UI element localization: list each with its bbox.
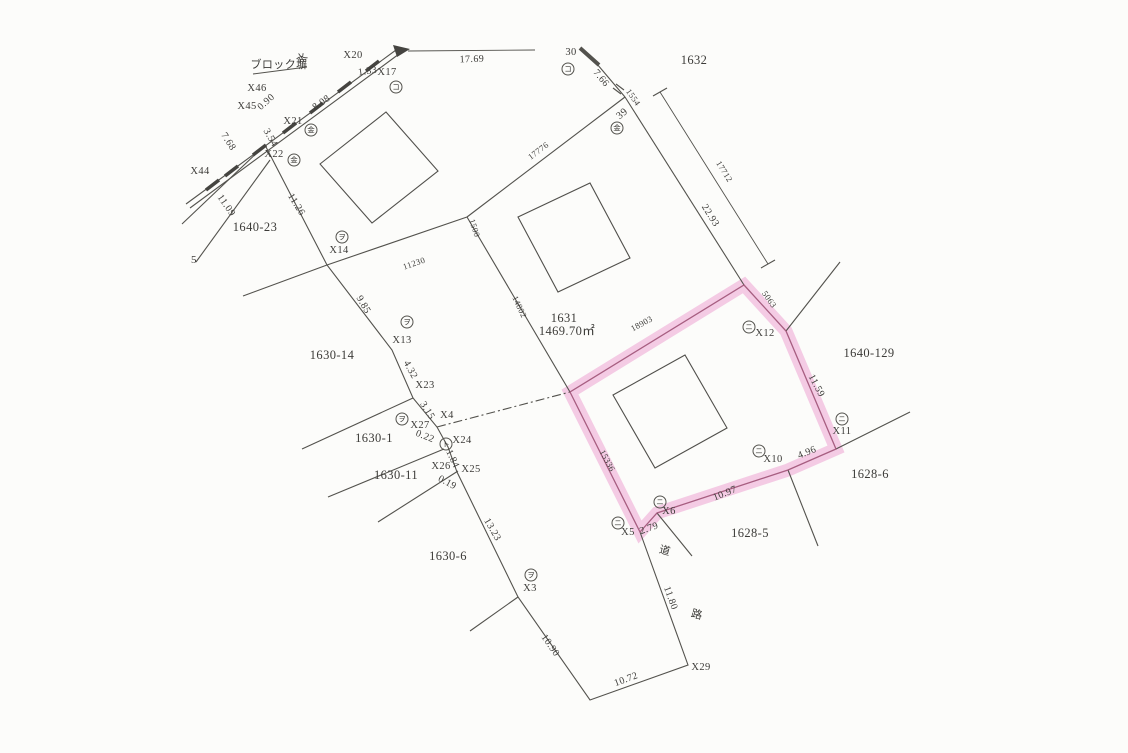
- point-label: X25: [461, 464, 480, 475]
- building-outline: [518, 183, 630, 292]
- point-label: X26: [431, 461, 450, 472]
- boundary-line: [786, 262, 840, 331]
- measurement-label: 3.15: [417, 400, 436, 422]
- point-label: X3: [523, 583, 537, 594]
- parcel-label: 1469.70㎡: [539, 324, 595, 338]
- parcel-label: 1630-1: [355, 431, 393, 445]
- measurement-label: 10.90: [539, 632, 562, 658]
- boundary-line: [437, 392, 570, 427]
- measurement-label: 17.69: [459, 54, 484, 66]
- boundary-line: [625, 97, 744, 285]
- boundary-line: [182, 148, 262, 224]
- pink-highlight-band: [570, 285, 836, 532]
- parcel-label: 1640-23: [233, 220, 277, 234]
- boundary-marker-glyph: ヲ: [527, 571, 535, 580]
- building-outlines: [320, 112, 727, 468]
- boundary-marker-glyph: コ: [564, 65, 572, 74]
- measurement-label: 22.93: [699, 202, 721, 229]
- boundary-marker-glyph: 金: [290, 155, 298, 165]
- point-label: X17: [377, 67, 396, 78]
- boundary-line: [243, 265, 327, 296]
- parcel-label: 1628-6: [851, 467, 889, 481]
- point-label: X12: [755, 328, 774, 339]
- distance-mm-label: 11230: [402, 255, 427, 272]
- point-label: X13: [392, 335, 411, 346]
- point-label: X6: [662, 506, 676, 517]
- measurement-label: 11.26: [285, 192, 307, 218]
- boundary-marker-glyph: ニ: [838, 415, 846, 424]
- boundary-line: [788, 470, 818, 546]
- parcel-label: 1632: [681, 53, 708, 67]
- point-label: X22: [264, 149, 283, 160]
- boundary-line: [408, 50, 535, 51]
- boundary-line: [467, 97, 625, 217]
- boundary-line: [761, 260, 775, 268]
- point-label: X20: [343, 50, 362, 61]
- boundary-marker-glyph: ヲ: [338, 233, 346, 242]
- boundary-marker-glyph: コ: [392, 83, 400, 92]
- point-label: X11: [833, 426, 852, 437]
- boundary-line: [190, 54, 399, 208]
- annotation-label: 路: [690, 607, 704, 623]
- parcel-label: 1630-14: [310, 348, 355, 362]
- parcel-label: 1631: [551, 311, 578, 325]
- point-label: X24: [452, 435, 472, 446]
- point-label: 39: [615, 106, 631, 122]
- measurement-label: 10.72: [613, 670, 640, 689]
- building-outline: [613, 355, 727, 468]
- measurement-label: 11.09: [215, 193, 238, 219]
- boundary-marker-glyph: ヲ: [398, 415, 406, 424]
- boundary-marker-glyph: ニ: [745, 323, 753, 332]
- highlighted-parcel-band: [570, 285, 836, 532]
- boundary-marker-glyph: ニ: [755, 447, 763, 456]
- measurement-label: 0.22: [414, 428, 436, 445]
- measurement-label: 7.66: [591, 68, 612, 90]
- point-label: X5: [621, 527, 635, 538]
- distance-mm-label: 17776: [526, 140, 551, 162]
- point-label: X10: [763, 454, 782, 465]
- point-label: X46: [247, 83, 266, 94]
- parcel-label: 1628-5: [731, 526, 769, 540]
- boundary-line: [327, 217, 467, 265]
- boundary-marker-glyph: 金: [613, 123, 621, 133]
- point-label: X45: [237, 101, 256, 112]
- point-label: X29: [691, 662, 710, 673]
- boundary-line: [470, 597, 518, 631]
- waterway-arrow-icon: [393, 45, 410, 57]
- survey-map-canvas: ココ金金金ヲヲヲトヲニニニニニ 16321640-231630-141630-1…: [0, 0, 1128, 753]
- annotation-label: 道: [658, 542, 673, 558]
- point-label: 30: [565, 47, 576, 58]
- point-label: X44: [190, 166, 210, 177]
- boundary-marker-glyph: ト: [442, 440, 450, 449]
- point-label: X21: [283, 116, 302, 127]
- measurement-label: 8.08: [311, 93, 333, 113]
- building-outline: [320, 112, 438, 223]
- measurement-label: 13.23: [481, 516, 503, 543]
- measurement-label: 0.90: [256, 92, 278, 113]
- annotation-label: 5: [191, 254, 197, 266]
- boundary-marker-glyph: ヲ: [403, 318, 411, 327]
- distance-mm-label: 1500: [467, 218, 482, 239]
- measurement-label: 10.97: [712, 484, 739, 503]
- distance-mm-label: 17712: [714, 159, 735, 184]
- measurement-label: 1.33: [357, 65, 377, 79]
- parcel-label: 1630-6: [429, 549, 467, 563]
- point-label: X23: [415, 380, 434, 391]
- parcel-label: 1640-129: [843, 346, 894, 360]
- measurement-label: 9.85: [354, 294, 373, 316]
- measurement-label: 7.68: [218, 131, 237, 153]
- boundary-marker-glyph: 金: [307, 125, 315, 135]
- boundary-line: [653, 88, 667, 96]
- boundary-line: [580, 48, 599, 65]
- parcel-label: 1630-11: [374, 468, 418, 482]
- distance-mm-label: 14802: [510, 294, 529, 319]
- point-label: X4: [440, 410, 454, 421]
- measurement-label: 0.19: [436, 473, 458, 492]
- cadastral-map-page: ココ金金金ヲヲヲトヲニニニニニ 16321640-231630-141630-1…: [0, 0, 1128, 753]
- distance-mm-label: 18903: [629, 313, 654, 333]
- distance-mm-label: 1554: [624, 87, 643, 108]
- map-labels: 16321640-231630-141630-11630-111630-6162…: [190, 47, 894, 689]
- point-label: X14: [329, 245, 349, 256]
